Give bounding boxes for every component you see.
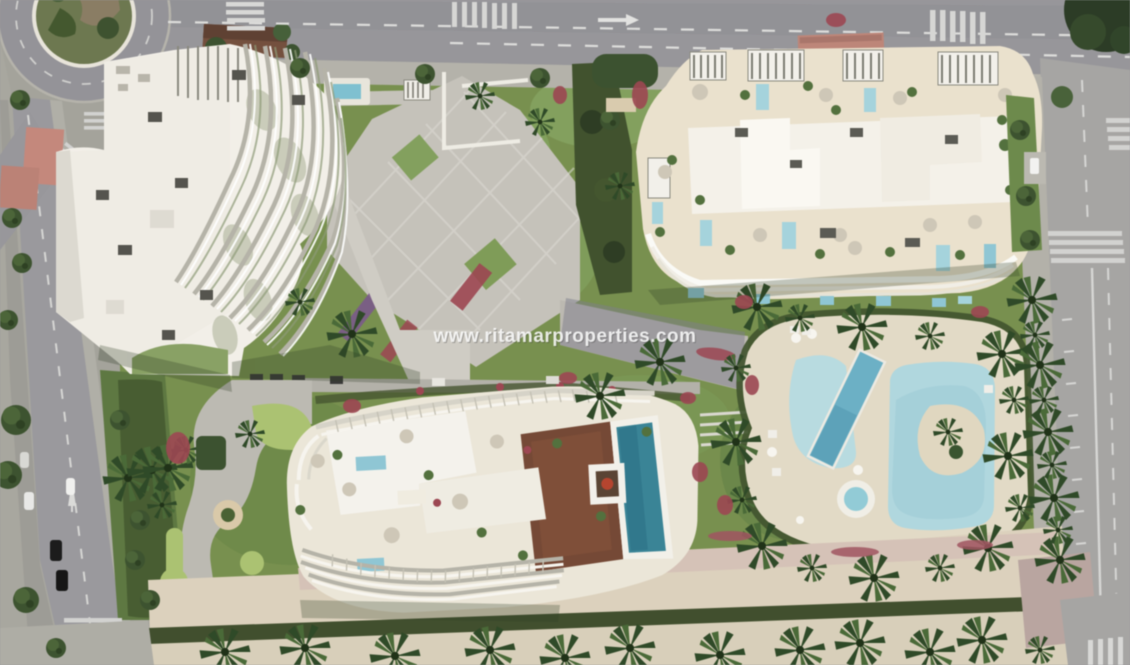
svg-text:www.ritamarproperties.com: www.ritamarproperties.com [432,326,696,347]
